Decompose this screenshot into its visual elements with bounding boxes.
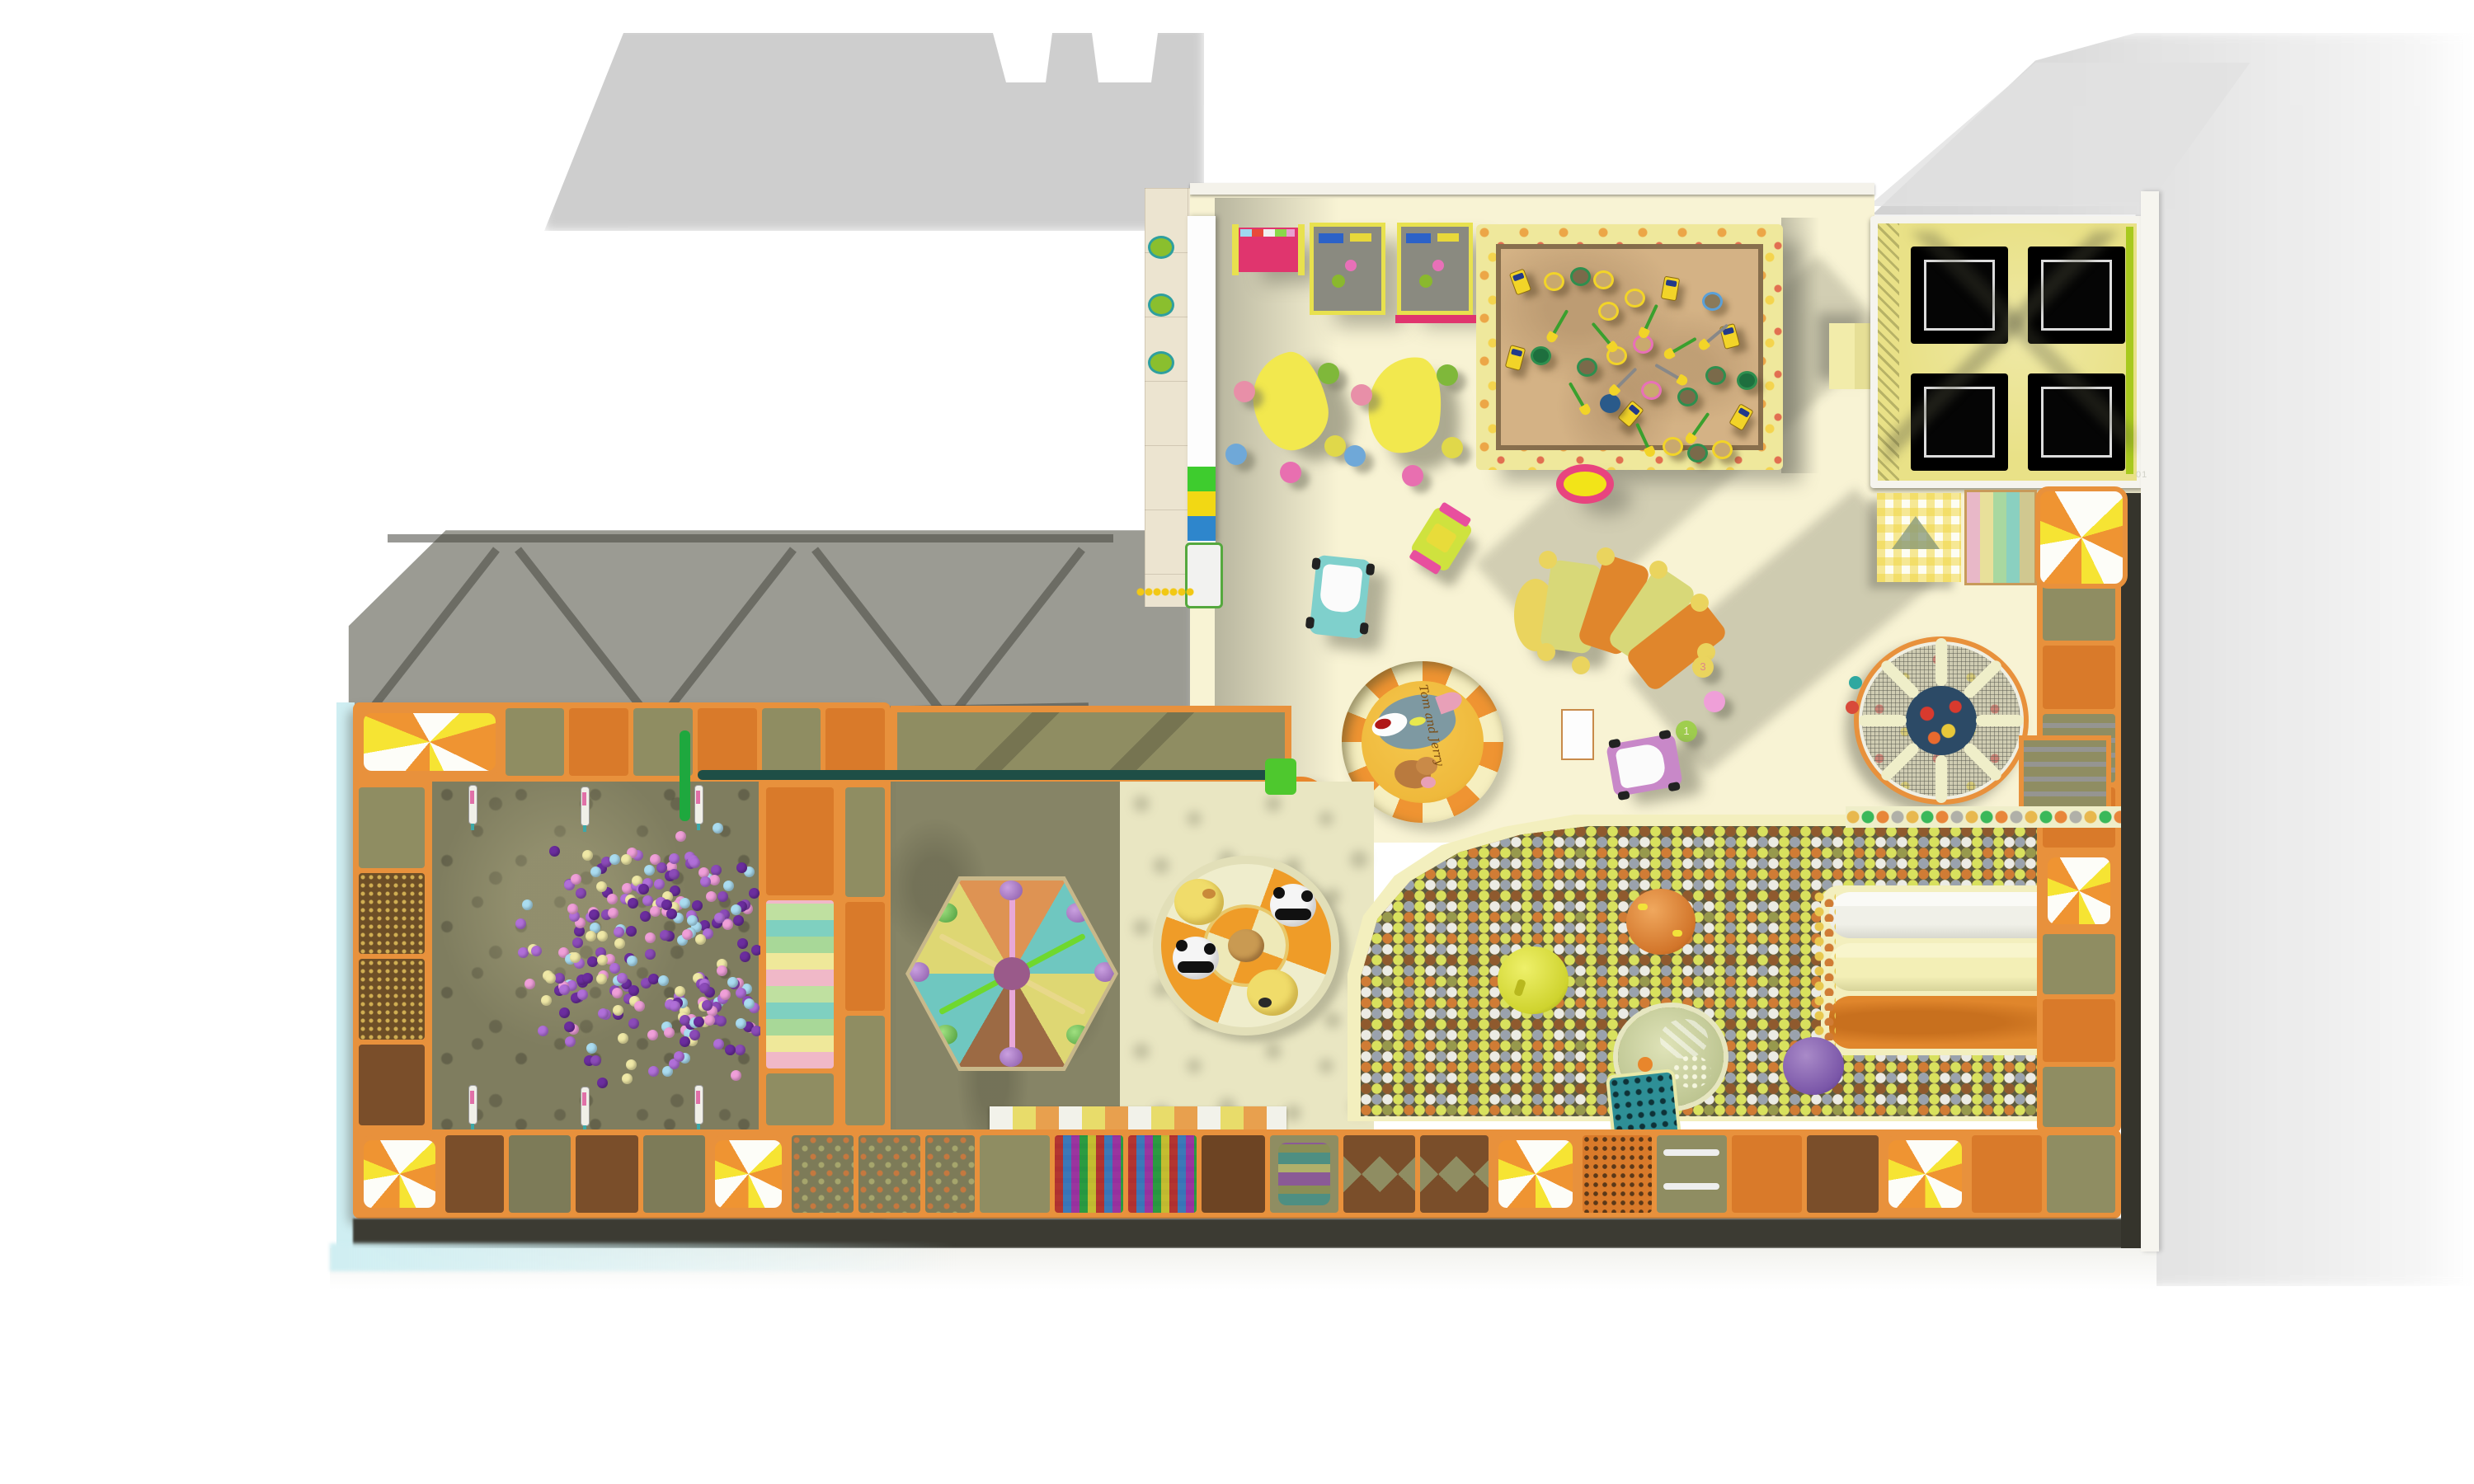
ladder-knob: [1638, 1057, 1653, 1072]
tom-jerry-disc: Tom and Jerry: [1362, 681, 1484, 803]
scatter-ball: [656, 862, 667, 873]
scatter-ball: [692, 900, 703, 911]
panel-cell: [2043, 646, 2115, 709]
sand-surface: [1496, 244, 1763, 450]
panel-cell: [825, 708, 885, 776]
scatter-ball: [545, 973, 556, 984]
truss-shadow-overlay: [1886, 232, 2133, 479]
scatter-ball: [617, 973, 628, 984]
carousel-center-animal: [1228, 929, 1264, 962]
scatter-ball: [596, 974, 607, 984]
hopper-ring: [1556, 464, 1614, 504]
panda-band: [1178, 961, 1214, 973]
scatter-ball: [669, 853, 680, 864]
scatter-ball: [626, 1059, 637, 1070]
scatter-ball: [628, 1018, 639, 1029]
big-ball-purple: [1783, 1037, 1844, 1095]
scatter-ball: [538, 1026, 548, 1036]
scatter-ball: [621, 854, 632, 865]
bed-post: [1298, 224, 1305, 275]
panel-cell: [643, 1135, 705, 1213]
tent-shadow: [1892, 516, 1940, 549]
panel-cell: [1807, 1135, 1879, 1213]
scatter-ball: [565, 1036, 576, 1047]
number-three: 3: [1700, 660, 1705, 673]
mesh-dot-panel: [792, 1135, 854, 1213]
scatter-ball: [680, 898, 690, 909]
scatter-ball: [664, 1027, 675, 1038]
roof-shadow-top-left: [544, 25, 1204, 231]
panel-cell: [980, 1135, 1050, 1213]
donut-chip-teal: [1849, 676, 1862, 689]
gingham-tent-mat: [1877, 493, 1961, 582]
wall-segment-blue: [1188, 516, 1216, 541]
toy-bucket: [1641, 381, 1662, 400]
scatter-ball: [731, 904, 741, 915]
pinwheel-corner: [359, 708, 501, 776]
scatter-ball: [714, 913, 725, 923]
toy-truck: [1617, 400, 1644, 428]
panel-cell: [698, 708, 757, 776]
scatter-ball: [640, 911, 651, 922]
number-block-pink: [1704, 691, 1725, 712]
stool-blue: [1344, 445, 1366, 467]
scatter-ball: [628, 898, 638, 909]
toy-truck: [1509, 269, 1531, 296]
scatter-ball: [675, 831, 686, 842]
scatter-ball: [607, 894, 618, 904]
scatter-ball: [675, 986, 685, 997]
scatter-ball: [704, 1015, 715, 1026]
scatter-ball: [614, 927, 624, 937]
scatter-ball: [737, 938, 748, 949]
ball-wall-panel: [359, 959, 425, 1040]
toy-bucket: [1570, 267, 1591, 286]
woven-net-panel: [1055, 1135, 1123, 1213]
car-wheel: [1658, 730, 1672, 740]
stool-yellow: [1442, 437, 1463, 458]
scatter-ball: [713, 1039, 724, 1050]
panel-cell: [1202, 1135, 1265, 1213]
caterpillar-foot: [1572, 656, 1590, 674]
toy-bucket: [1705, 366, 1726, 385]
scatter-ball: [586, 931, 596, 942]
panda-ear: [1204, 943, 1216, 955]
caterpillar-foot: [1537, 643, 1555, 661]
toy-shovel: [1691, 412, 1710, 437]
panel-cell: [2043, 1067, 2115, 1127]
stool-yellow: [1324, 435, 1346, 457]
scatter-ball: [689, 1030, 700, 1040]
panel-cell: [1972, 1135, 2042, 1213]
scatter-ball: [576, 888, 586, 899]
hex-knob: [999, 1047, 1023, 1067]
roller-column: [760, 782, 840, 1131]
pole: [1663, 1183, 1719, 1190]
truss-bar-icon: [388, 534, 1113, 542]
ball-dash: [1513, 979, 1526, 997]
scatter-ball: [597, 955, 608, 965]
toy-bucket: [1577, 358, 1597, 377]
wall-segment-yellow: [1188, 491, 1216, 516]
floor-mat-white: [1561, 709, 1594, 760]
panel-cell: [762, 708, 821, 776]
scatter-ball: [740, 951, 750, 962]
big-ball-yellow: [1498, 946, 1569, 1014]
scatter-ball: [618, 1033, 628, 1044]
pastel-rollers: [1964, 490, 2037, 585]
scatter-ball: [586, 1043, 597, 1054]
scatter-ball: [666, 909, 677, 919]
panel-cell: [845, 902, 885, 1012]
scatter-ball: [590, 866, 601, 877]
scatter-ball: [669, 869, 680, 880]
ball-wall-panel: [359, 873, 425, 954]
chair: [1148, 294, 1174, 317]
panda-ear: [1301, 890, 1313, 902]
dot-pink: [1432, 260, 1444, 271]
toy-bucket: [1712, 440, 1733, 459]
hopper-center: [1564, 472, 1606, 496]
scatter-ball: [582, 850, 593, 861]
caterpillar-tunnel: [1514, 557, 1704, 706]
toy-car-purple: [1606, 733, 1683, 797]
toy-bucket: [1687, 444, 1708, 463]
scatter-ball: [609, 854, 620, 865]
jerry-ear: [1421, 777, 1436, 788]
ball-blaster-cannon: [581, 1087, 590, 1126]
stool-green: [1437, 364, 1458, 386]
panel-cell: [359, 787, 425, 868]
scatter-ball: [628, 985, 639, 996]
caterpillar-foot: [1597, 547, 1615, 566]
pinwheel-corner: [1884, 1135, 1967, 1213]
step-block: [1829, 323, 1872, 389]
ball-track-row: [1846, 806, 2121, 828]
panel-cell: [576, 1135, 637, 1213]
top-wall: [1190, 183, 1874, 195]
zip-block: [1265, 758, 1296, 795]
toy-shovel: [1569, 382, 1585, 407]
scatter-ball: [549, 846, 560, 857]
pinwheel-corner: [2043, 852, 2115, 929]
stool-deeppink: [1280, 462, 1301, 483]
toy-bucket: [1702, 292, 1723, 311]
woven-net-panel: [1128, 1135, 1197, 1213]
scatter-ball: [577, 989, 588, 1000]
toy-truck: [1505, 345, 1526, 371]
panda-ear: [1176, 940, 1188, 951]
toy-shovel: [1671, 337, 1696, 354]
wall-watermark: 01: [2136, 470, 2147, 480]
carousel-deck: [1161, 864, 1331, 1027]
panel-cell: [766, 787, 834, 895]
perforated-panel: [1583, 1135, 1652, 1213]
scatter-ball: [699, 983, 710, 993]
roller-slide: [766, 900, 834, 1069]
scatter-ball: [572, 937, 583, 948]
toy-shovel: [1552, 309, 1569, 335]
ball-blaster-cannon: [694, 1085, 703, 1125]
panel-cell: [1732, 1135, 1802, 1213]
toy-bucket: [1600, 394, 1620, 413]
bear-seat: [1174, 879, 1224, 925]
diamond-panel: [1420, 1135, 1489, 1213]
pole-cell: [1657, 1135, 1727, 1213]
ball-dot: [1672, 930, 1682, 937]
toy-bucket: [1677, 387, 1698, 406]
big-ball-orange: [1626, 889, 1696, 955]
dot-green: [1332, 275, 1345, 288]
scatter-ball: [713, 823, 723, 834]
scatter-ball: [531, 946, 542, 956]
scatter-ball: [597, 1078, 608, 1088]
toy-shovel: [1592, 322, 1612, 346]
toy-bucket: [1531, 346, 1551, 365]
bear-muzzle: [1258, 998, 1272, 1007]
toy-bucket: [1737, 371, 1757, 390]
scatter-ball: [609, 963, 620, 974]
toy-bucket: [1625, 289, 1645, 308]
arena-inner-column: [840, 782, 891, 1131]
panel-cell: [845, 1016, 885, 1125]
toy-truck: [1729, 403, 1753, 431]
panel-cell: [569, 708, 628, 776]
scatter-ball: [720, 989, 731, 1000]
hex-hub: [994, 957, 1030, 990]
playground-floorplan: 3 1 Tom and Jerry: [0, 0, 2474, 1484]
panel-cell: [2043, 934, 2115, 994]
mesh-dot-panel: [925, 1135, 974, 1213]
bear-seat: [1247, 970, 1298, 1016]
scatter-ball: [702, 1000, 713, 1011]
trampoline-court: [1870, 216, 2144, 488]
car-wheel: [1305, 617, 1315, 629]
scatter-ball: [626, 926, 637, 937]
ball-blaster-cannon: [468, 1085, 477, 1125]
scatter-ball: [559, 1007, 570, 1018]
scatter-ball: [723, 881, 734, 891]
awning-stripe: [990, 1106, 1286, 1131]
dot-green: [1419, 275, 1432, 288]
scatter-ball: [634, 1001, 645, 1012]
scatter-ball: [658, 975, 669, 986]
scatter-ball: [680, 1015, 690, 1026]
block-blue: [1319, 233, 1343, 243]
panda-band: [1275, 909, 1311, 920]
scatter-ball: [733, 915, 744, 926]
ball-blaster-cannon: [694, 785, 703, 824]
scatter-ball: [654, 879, 665, 890]
mesh-dot-panel: [858, 1135, 920, 1213]
trampoline-floor: [1878, 223, 2137, 481]
scatter-ball: [647, 1030, 658, 1040]
scatter-ball: [648, 974, 659, 984]
scatter-ball: [644, 865, 655, 876]
car-wheel: [1359, 622, 1368, 635]
block-blue: [1406, 233, 1431, 243]
stool-green: [1318, 363, 1339, 384]
stacker-yellow: [1425, 523, 1457, 554]
diamond-panel: [1343, 1135, 1415, 1213]
scatter-ball: [735, 1045, 745, 1055]
scatter-ball: [700, 876, 711, 887]
panda-seat: [1173, 937, 1219, 979]
toy-bucket: [1598, 302, 1619, 321]
panda-seat: [1270, 884, 1316, 927]
scatter-ball: [518, 947, 529, 958]
scatter-ball: [582, 973, 593, 984]
wall-segment-green: [1188, 467, 1216, 491]
chair: [1148, 236, 1174, 259]
pinwheel-corner: [1493, 1135, 1577, 1213]
scatter-ball: [749, 888, 760, 899]
panel-cell: [359, 1045, 425, 1125]
zip-pole: [680, 730, 690, 821]
scatter-ball: [627, 956, 637, 966]
scatter-ball: [725, 1045, 736, 1055]
car-seat: [1615, 742, 1667, 789]
stool-deeppink: [1402, 465, 1423, 486]
cyan-glow: [330, 1243, 957, 1271]
scatter-ball: [674, 1051, 684, 1062]
panel-cell: [2047, 1135, 2115, 1213]
toy-car-teal: [1309, 555, 1371, 639]
scatter-ball: [590, 1055, 601, 1066]
car-wheel: [1366, 563, 1375, 575]
panel-cell: [766, 1073, 834, 1125]
scatter-ball: [645, 949, 656, 960]
block-yellow: [1350, 233, 1371, 242]
pinwheel-corner: [710, 1135, 787, 1213]
stool-pink: [1234, 381, 1255, 402]
scatter-ball: [622, 1073, 633, 1084]
scatter-ball: [689, 857, 700, 868]
toy-bucket: [1663, 437, 1683, 456]
zip-beam: [698, 770, 1288, 780]
bear-muzzle: [1202, 889, 1216, 899]
scatter-ball: [515, 918, 526, 929]
scatter-ball: [682, 929, 693, 940]
scatter-ball: [670, 1001, 680, 1012]
barrel-cell: [1270, 1135, 1338, 1213]
bed-post: [1232, 224, 1239, 275]
donut-climber: [1854, 636, 2029, 805]
scatter-ball: [648, 1066, 659, 1077]
disc-holes: [1673, 1055, 1711, 1089]
scatter-ball: [541, 995, 552, 1006]
scatter-ball: [695, 934, 706, 945]
panel-cell: [506, 708, 565, 776]
scatter-ball: [589, 909, 600, 920]
car-seat: [1319, 564, 1363, 614]
bed-pillow-row: [1240, 229, 1295, 237]
number-block-yellow: 3: [1692, 656, 1714, 678]
scatter-ball: [680, 1036, 690, 1047]
ladder-panel: [2019, 735, 2111, 811]
scatter-ball: [559, 984, 570, 995]
pinwheel-hut: [2035, 486, 2128, 589]
scatter-ball: [596, 881, 607, 892]
scatter-ball: [597, 931, 608, 942]
hex-knob: [999, 881, 1023, 900]
panel-cell: [445, 1135, 504, 1213]
scatter-ball: [587, 956, 598, 967]
caterpillar-foot: [1649, 561, 1667, 579]
donut-chip-red: [1846, 701, 1859, 714]
number-block-green: 1: [1676, 721, 1697, 742]
bead-track: [1136, 587, 1194, 597]
panel-cell: [509, 1135, 571, 1213]
toy-shovel: [1616, 368, 1638, 390]
ball-dot: [1638, 904, 1648, 910]
panel-cell: [2043, 999, 2115, 1061]
pinwheel-corner: [359, 1135, 440, 1213]
stool-blue: [1225, 444, 1247, 465]
playhouse-mat-pink: [1395, 315, 1478, 323]
scatter-ball: [608, 908, 618, 918]
scatter-ball: [571, 874, 581, 885]
right-dark-wall: [2121, 493, 2141, 1248]
slide-entry-balls: [1814, 892, 1836, 1049]
playhouse: [1310, 223, 1385, 315]
block-yellow: [1437, 233, 1459, 242]
scatter-ball: [645, 932, 656, 943]
panda-ear: [1273, 887, 1285, 899]
scatter-ball: [661, 899, 672, 910]
tom-ear-pink: [1435, 689, 1465, 715]
caterpillar-foot: [1691, 594, 1709, 612]
scatter-ball: [638, 884, 649, 895]
caterpillar-foot: [1539, 551, 1557, 569]
scatter-ball: [717, 965, 727, 976]
scatter-ball: [706, 891, 717, 902]
car-wheel: [1608, 739, 1621, 749]
scatter-ball: [612, 988, 623, 998]
scatter-ball: [716, 1016, 727, 1026]
bottom-cell-row: [353, 1129, 2121, 1219]
scatter-ball: [614, 938, 625, 949]
disc-glare: [1660, 1019, 1708, 1059]
right-white-wall: [2141, 191, 2159, 1252]
dot-pink: [1345, 260, 1357, 271]
scatter-ball: [524, 979, 535, 989]
cabinet: [1185, 542, 1223, 608]
scatter-ball: [717, 891, 728, 902]
scatter-ball: [522, 899, 533, 910]
scatter-ball: [744, 998, 755, 1009]
chair: [1148, 351, 1174, 374]
toy-truck: [1661, 276, 1681, 302]
toy-shovel: [1644, 304, 1658, 331]
panel-cell: [2043, 582, 2115, 641]
toy-shovel: [1654, 364, 1680, 380]
car-wheel: [1311, 557, 1320, 570]
pole: [1663, 1149, 1719, 1156]
blaster-floor: [432, 782, 759, 1131]
arena-left-column: [353, 782, 430, 1131]
toy-bucket: [1544, 272, 1564, 291]
toy-shovel: [1635, 423, 1650, 450]
toy-bucket: [1593, 270, 1614, 289]
ball-blaster-cannon: [468, 785, 477, 824]
toy-bed: [1237, 228, 1300, 272]
striped-barrel: [1278, 1143, 1330, 1205]
playhouse: [1397, 223, 1473, 315]
arena-cyan-wall-left: [336, 702, 355, 1256]
scatter-ball: [613, 1005, 623, 1016]
number-one: 1: [1683, 725, 1689, 737]
